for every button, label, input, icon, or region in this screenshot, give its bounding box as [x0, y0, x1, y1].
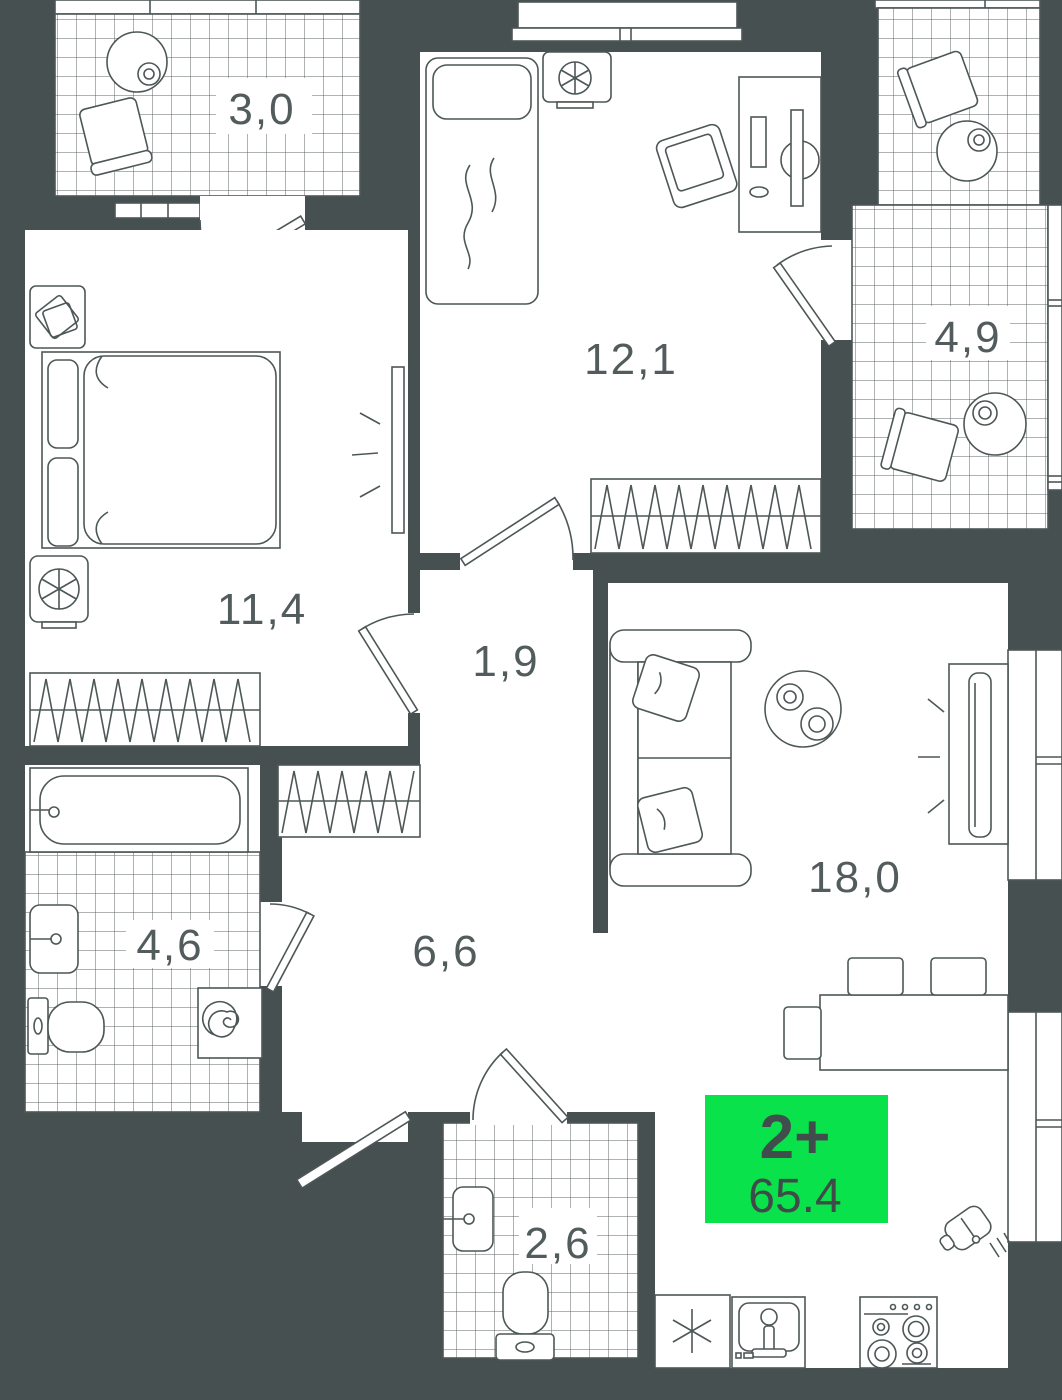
room-area-label: 2,6 [524, 1219, 591, 1268]
fridge-icon [655, 1295, 730, 1368]
window [115, 203, 200, 218]
window [1008, 650, 1062, 880]
badge-area-value: 65.4 [748, 1170, 841, 1223]
ac-fan-unit-icon [543, 52, 611, 108]
window [1048, 205, 1062, 490]
stove-icon [860, 1297, 937, 1368]
sink-icon [30, 905, 78, 973]
window [518, 2, 737, 28]
single-bed-icon [426, 58, 538, 304]
floor-plan: 3,0 [0, 0, 1062, 1400]
toilet-icon [496, 1272, 554, 1360]
floor-plan-canvas: 3,0 [0, 0, 1062, 1400]
bar-stool-icon [931, 958, 986, 995]
room-area-label: 18,0 [808, 853, 902, 902]
kitchen-sink-icon [732, 1297, 805, 1368]
window-sill [512, 28, 742, 41]
room-area-label: 1,9 [472, 637, 539, 686]
area-badge: 2+ 65.4 [705, 1095, 888, 1223]
wardrobe-icon [30, 673, 260, 746]
room-loggia-right: 4,9 [852, 0, 1062, 529]
sofa-icon [610, 630, 751, 886]
window [55, 0, 360, 14]
coffee-table-icon [765, 671, 841, 747]
room-bathroom-left: 4,6 [25, 765, 262, 1112]
room-area-label: 6,6 [412, 927, 479, 976]
nightstand-icon [30, 286, 85, 348]
room-area-label: 3,0 [228, 85, 295, 134]
tile-floor [25, 852, 260, 1112]
round-table-icon [107, 32, 167, 92]
toilet-icon [28, 998, 104, 1054]
room-area-label: 11,4 [217, 585, 307, 634]
desk-icon [739, 77, 821, 232]
room-area-label: 4,9 [934, 313, 1001, 362]
ac-fan-unit-icon [30, 556, 88, 628]
bathtub-icon [30, 768, 248, 852]
badge-rooms-label: 2+ [760, 1103, 831, 1172]
wardrobe-icon [278, 765, 420, 837]
room-area-label: 4,6 [136, 921, 203, 970]
washing-machine-icon [198, 988, 262, 1058]
round-table-icon [964, 393, 1026, 455]
window [1008, 1012, 1062, 1242]
double-bed-icon [42, 352, 280, 548]
bar-stool-icon [784, 1007, 821, 1059]
room-living-kitchen: 18,0 [593, 583, 1062, 1368]
wardrobe-icon [591, 479, 821, 553]
room-bedroom-top: 12,1 [420, 2, 852, 572]
round-table-icon [937, 121, 997, 181]
room-bedroom-left: 11,4 [25, 230, 422, 746]
window [875, 0, 1040, 8]
room-area-label: 12,1 [584, 335, 678, 384]
bar-stool-icon [848, 958, 903, 995]
